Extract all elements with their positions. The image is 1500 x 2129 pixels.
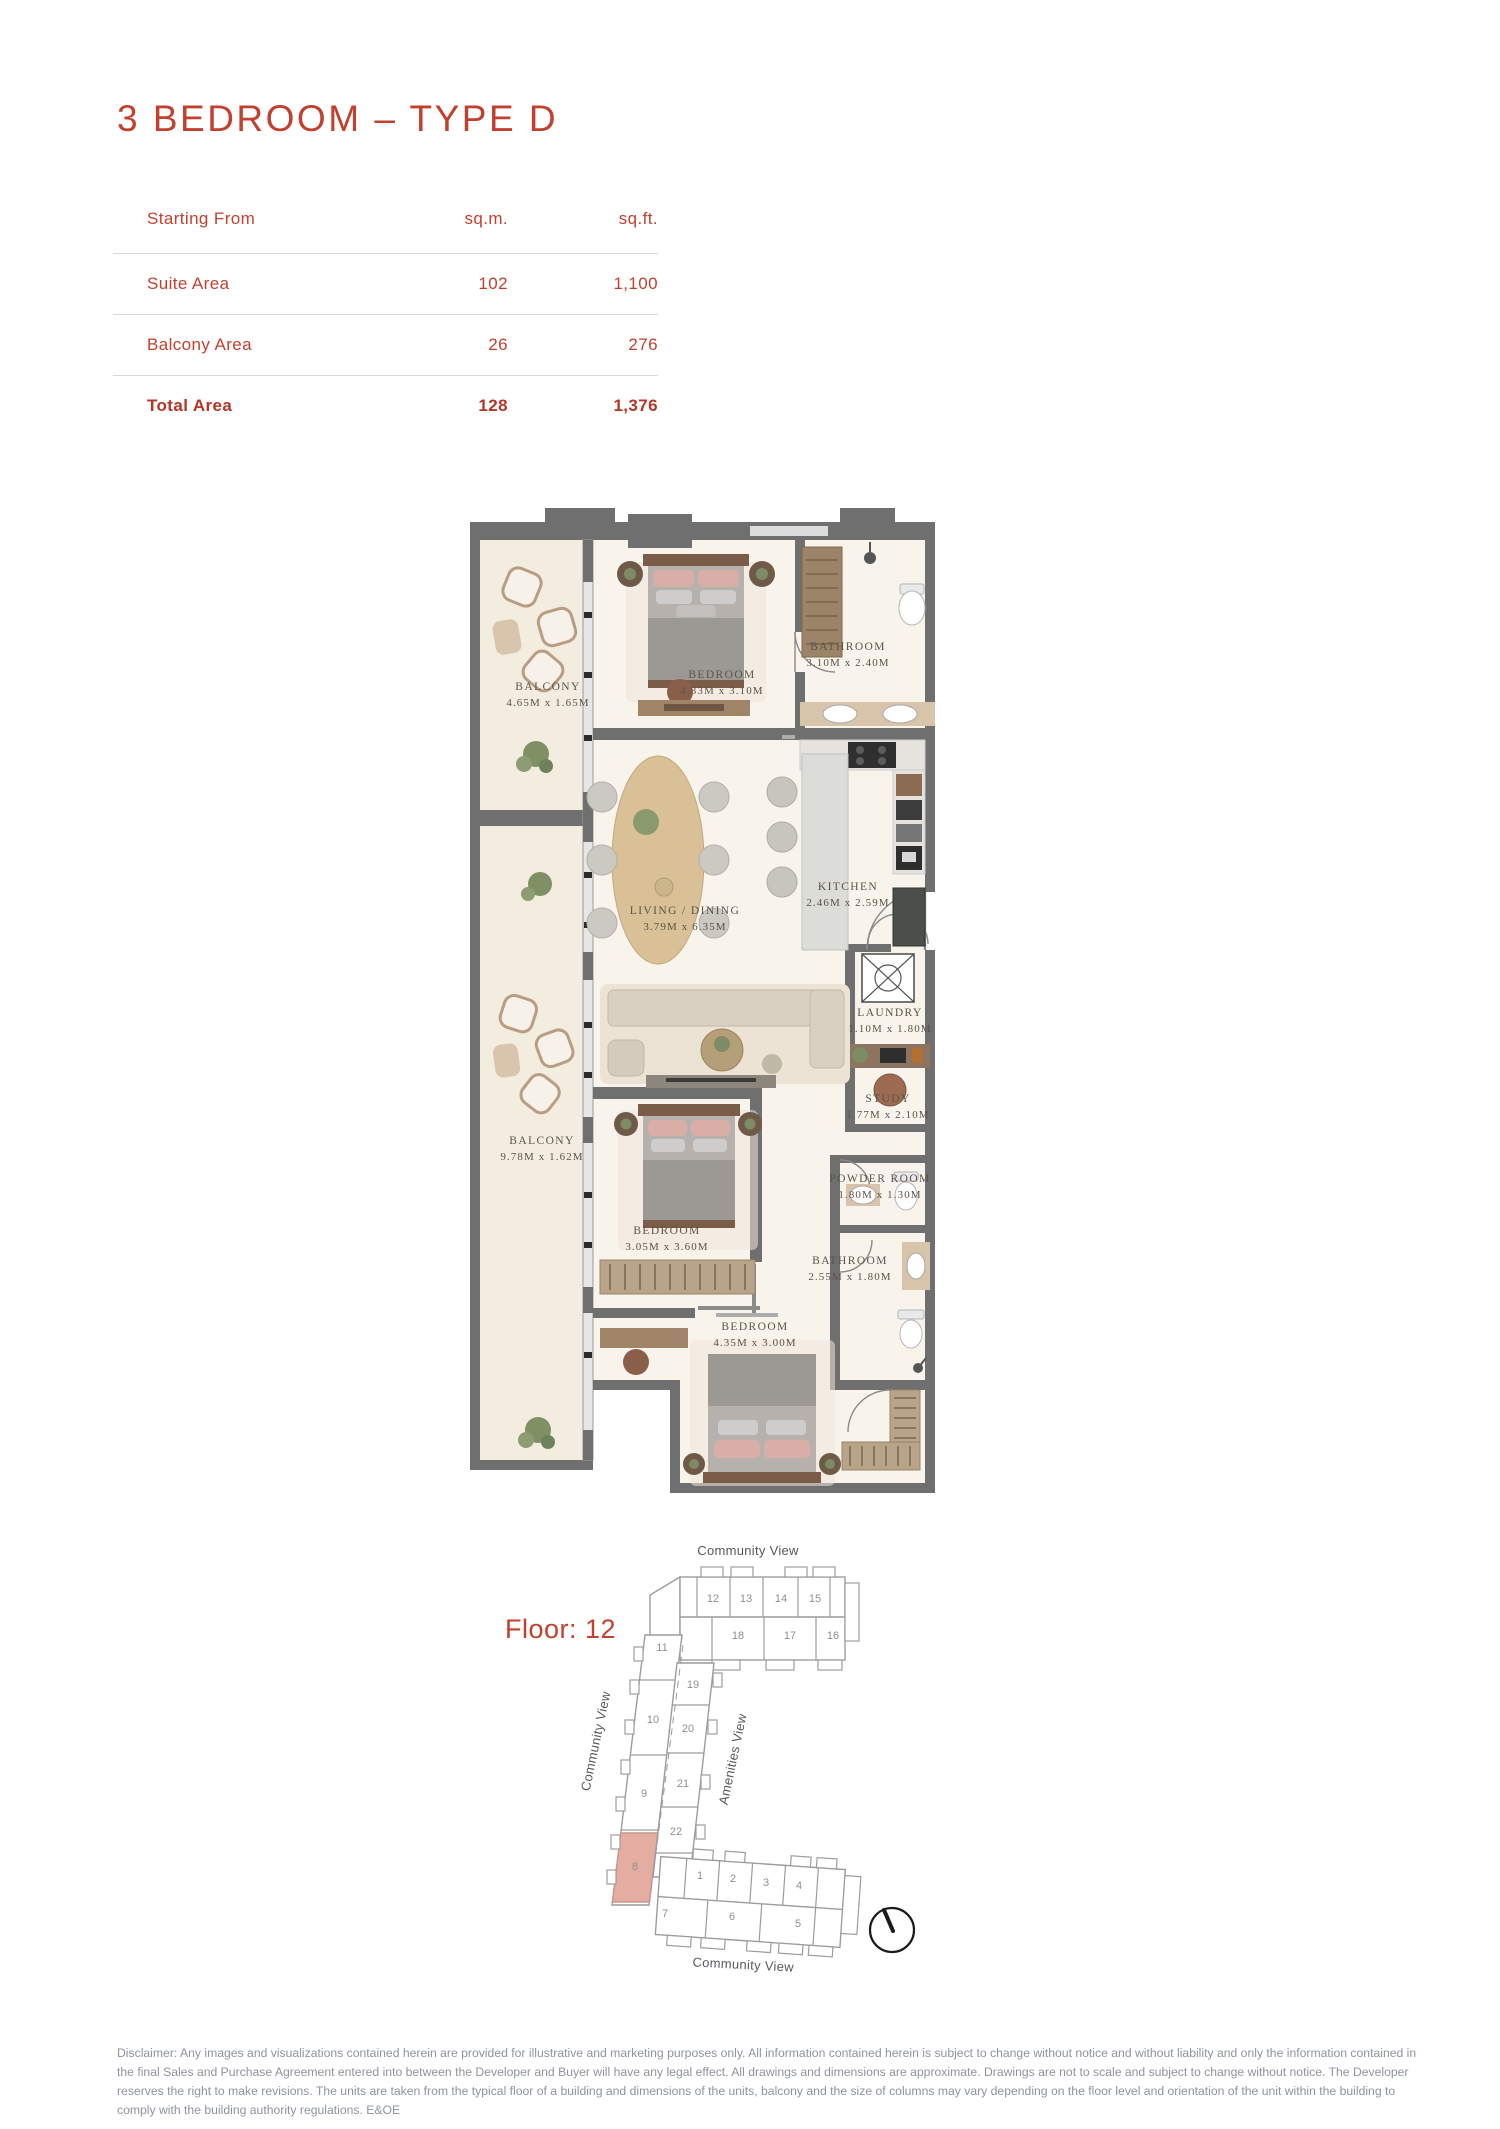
room-label-living-dining: LIVING / DINING [630,905,740,917]
area-table-header-sqm: sq.m. [378,209,508,229]
floor-plan: BALCONY 4.65M x 1.65M BEDROOM 4.33M x 3.… [450,492,970,1502]
floor-label: Floor: 12 [505,1614,616,1644]
table-row-total-area: Total Area 128 1,376 [113,376,658,416]
table-row-balcony-area: Balcony Area 26 276 [113,315,658,376]
room-label-kitchen: KITCHEN [818,881,878,893]
room-dims-living-dining: 3.79M x 6.35M [643,921,726,933]
room-label-balcony-2: BALCONY [509,1135,574,1147]
unit-label: 1 [697,1870,703,1882]
unit-label-highlighted: 8 [632,1861,638,1873]
unit-label: 21 [677,1778,689,1790]
row-sqft: 1,100 [508,274,658,294]
room-dims-bedroom-3: 4.35M x 3.00M [713,1337,796,1349]
unit-label: 3 [763,1877,769,1889]
area-table-header-label: Starting From [113,209,378,229]
room-label-bathroom-2: BATHROOM [812,1255,888,1267]
table-row-suite-area: Suite Area 102 1,100 [113,254,658,315]
unit-label: 14 [775,1593,787,1605]
page-title: 3 BEDROOM – TYPE D [117,98,558,140]
view-label-bottom: Community View [692,1954,794,1974]
laundry-fixtures [862,954,914,1002]
room-dims-study: 1.77M x 2.10M [846,1109,929,1121]
room-label-study: STUDY [865,1093,910,1105]
unit-label: 22 [670,1826,682,1838]
room-label-bedroom-1: BEDROOM [688,669,755,681]
unit-label: 6 [729,1911,735,1923]
view-label-top: Community View [697,1543,799,1558]
unit-label: 10 [647,1714,659,1726]
room-label-laundry: LAUNDRY [857,1007,922,1019]
unit-label: 7 [662,1908,668,1920]
row-label: Total Area [113,396,378,416]
room-dims-laundry: 1.10M x 1.80M [848,1023,931,1035]
bedroom2-furniture [600,1104,762,1294]
row-sqft: 276 [508,335,658,355]
unit-label: 5 [795,1918,801,1930]
area-table-header: Starting From sq.m. sq.ft. [113,203,658,254]
room-label-bedroom-2: BEDROOM [633,1225,700,1237]
row-sqft: 1,376 [508,396,658,416]
row-sqm: 128 [378,396,508,416]
compass-icon [870,1908,914,1952]
unit-label: 17 [784,1630,796,1642]
unit-label: 13 [740,1593,752,1605]
room-label-bedroom-3: BEDROOM [721,1321,788,1333]
unit-label: 15 [809,1593,821,1605]
row-sqm: 102 [378,274,508,294]
row-label: Suite Area [113,274,378,294]
unit-label: 18 [732,1630,744,1642]
unit-label: 9 [641,1788,647,1800]
row-sqm: 26 [378,335,508,355]
view-label-amenities: Amenities View [716,1712,750,1806]
room-dims-bedroom-2: 3.05M x 3.60M [625,1241,708,1253]
unit-label: 12 [707,1593,719,1605]
view-label-left: Community View [578,1690,614,1793]
room-dims-bathroom-1: 3.10M x 2.40M [806,657,889,669]
room-dims-bathroom-2: 2.55M x 1.80M [808,1271,891,1283]
room-dims-powder-room: 1.80M x 1.30M [838,1189,921,1201]
unit-label: 11 [656,1642,667,1654]
room-dims-bedroom-1: 4.33M x 3.10M [680,685,763,697]
room-dims-balcony-1: 4.65M x 1.65M [506,697,589,709]
unit-label: 20 [682,1723,694,1735]
room-dims-balcony-2: 9.78M x 1.62M [500,1151,583,1163]
unit-label: 19 [687,1679,699,1691]
unit-label: 4 [796,1880,802,1892]
area-table: Starting From sq.m. sq.ft. Suite Area 10… [113,203,658,416]
unit-label: 16 [827,1630,839,1642]
keyplan: 12 13 14 15 18 17 16 11 19 10 20 9 21 22… [500,1535,930,1985]
room-label-bathroom-1: BATHROOM [810,641,886,653]
unit-label: 2 [730,1873,736,1885]
room-label-balcony-1: BALCONY [515,681,580,693]
row-label: Balcony Area [113,335,378,355]
area-table-header-sqft: sq.ft. [508,209,658,229]
disclaimer-text: Disclaimer: Any images and visualization… [117,2044,1417,2120]
room-label-powder-room: POWDER ROOM [829,1173,930,1185]
room-dims-kitchen: 2.46M x 2.59M [806,897,889,909]
